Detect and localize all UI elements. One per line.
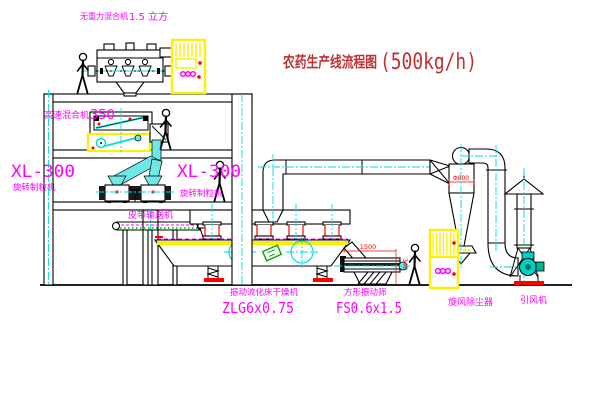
title-capacity: (500kg/h) — [380, 50, 477, 75]
granulator-right-unit — [135, 185, 171, 203]
dryer-spring-feet — [204, 266, 333, 282]
label-fan: 引风机 — [520, 294, 547, 306]
granulator-left-unit — [99, 185, 135, 203]
label-granulator-right-name: 旋转制粒机 — [180, 188, 223, 199]
floor-slab-top — [44, 94, 252, 102]
title-text: 农药生产线流程图 — [282, 53, 377, 71]
right-column — [232, 94, 252, 285]
label-high-speed-mixer-name: 高速混合机 — [44, 109, 89, 121]
label-gravity-mixer-name: 无重力混合机 — [80, 11, 128, 21]
indicator-dot — [198, 61, 202, 65]
dryer-connectors — [203, 222, 341, 239]
fan-base — [514, 281, 544, 285]
diagram-title: 农药生产线流程图 (500kg/h) — [282, 50, 477, 75]
label-screen-name: 方形振动筛 — [344, 287, 387, 298]
label-belt-conveyor: 皮带输送机 — [128, 209, 173, 221]
process-flow-diagram: Φ800 — [0, 0, 600, 403]
label-dryer-name: 振动流化床干燥机 — [230, 287, 299, 298]
label-screen-model: FS0.6x1.5 — [336, 299, 402, 317]
label-granulator-left-name: 旋转制粒机 — [13, 182, 56, 193]
label-high-speed-mixer-spec: 350 — [90, 108, 115, 123]
label-gravity-mixer-spec: 1.5 立方 — [129, 10, 168, 23]
worker-top-floor — [78, 53, 89, 93]
fluid-bed-dryer — [155, 204, 366, 282]
label-dryer-model: ZLG6x0.75 — [222, 299, 294, 317]
gravity-free-mixer — [84, 43, 178, 96]
screen-height-dim: 340 — [401, 258, 409, 270]
label-cyclone: 旋风除尘器 — [448, 296, 493, 308]
control-cabinet-right — [430, 230, 458, 288]
fan-motor — [536, 262, 544, 271]
label-granulator-right-model: XL-300 — [177, 162, 241, 182]
floor-slab-lower — [44, 202, 252, 210]
worker-ground — [410, 244, 421, 284]
control-cabinet-top — [172, 40, 205, 93]
label-granulator-left-model: XL-300 — [11, 162, 75, 182]
screen-length-dim: 1500 — [360, 243, 377, 251]
